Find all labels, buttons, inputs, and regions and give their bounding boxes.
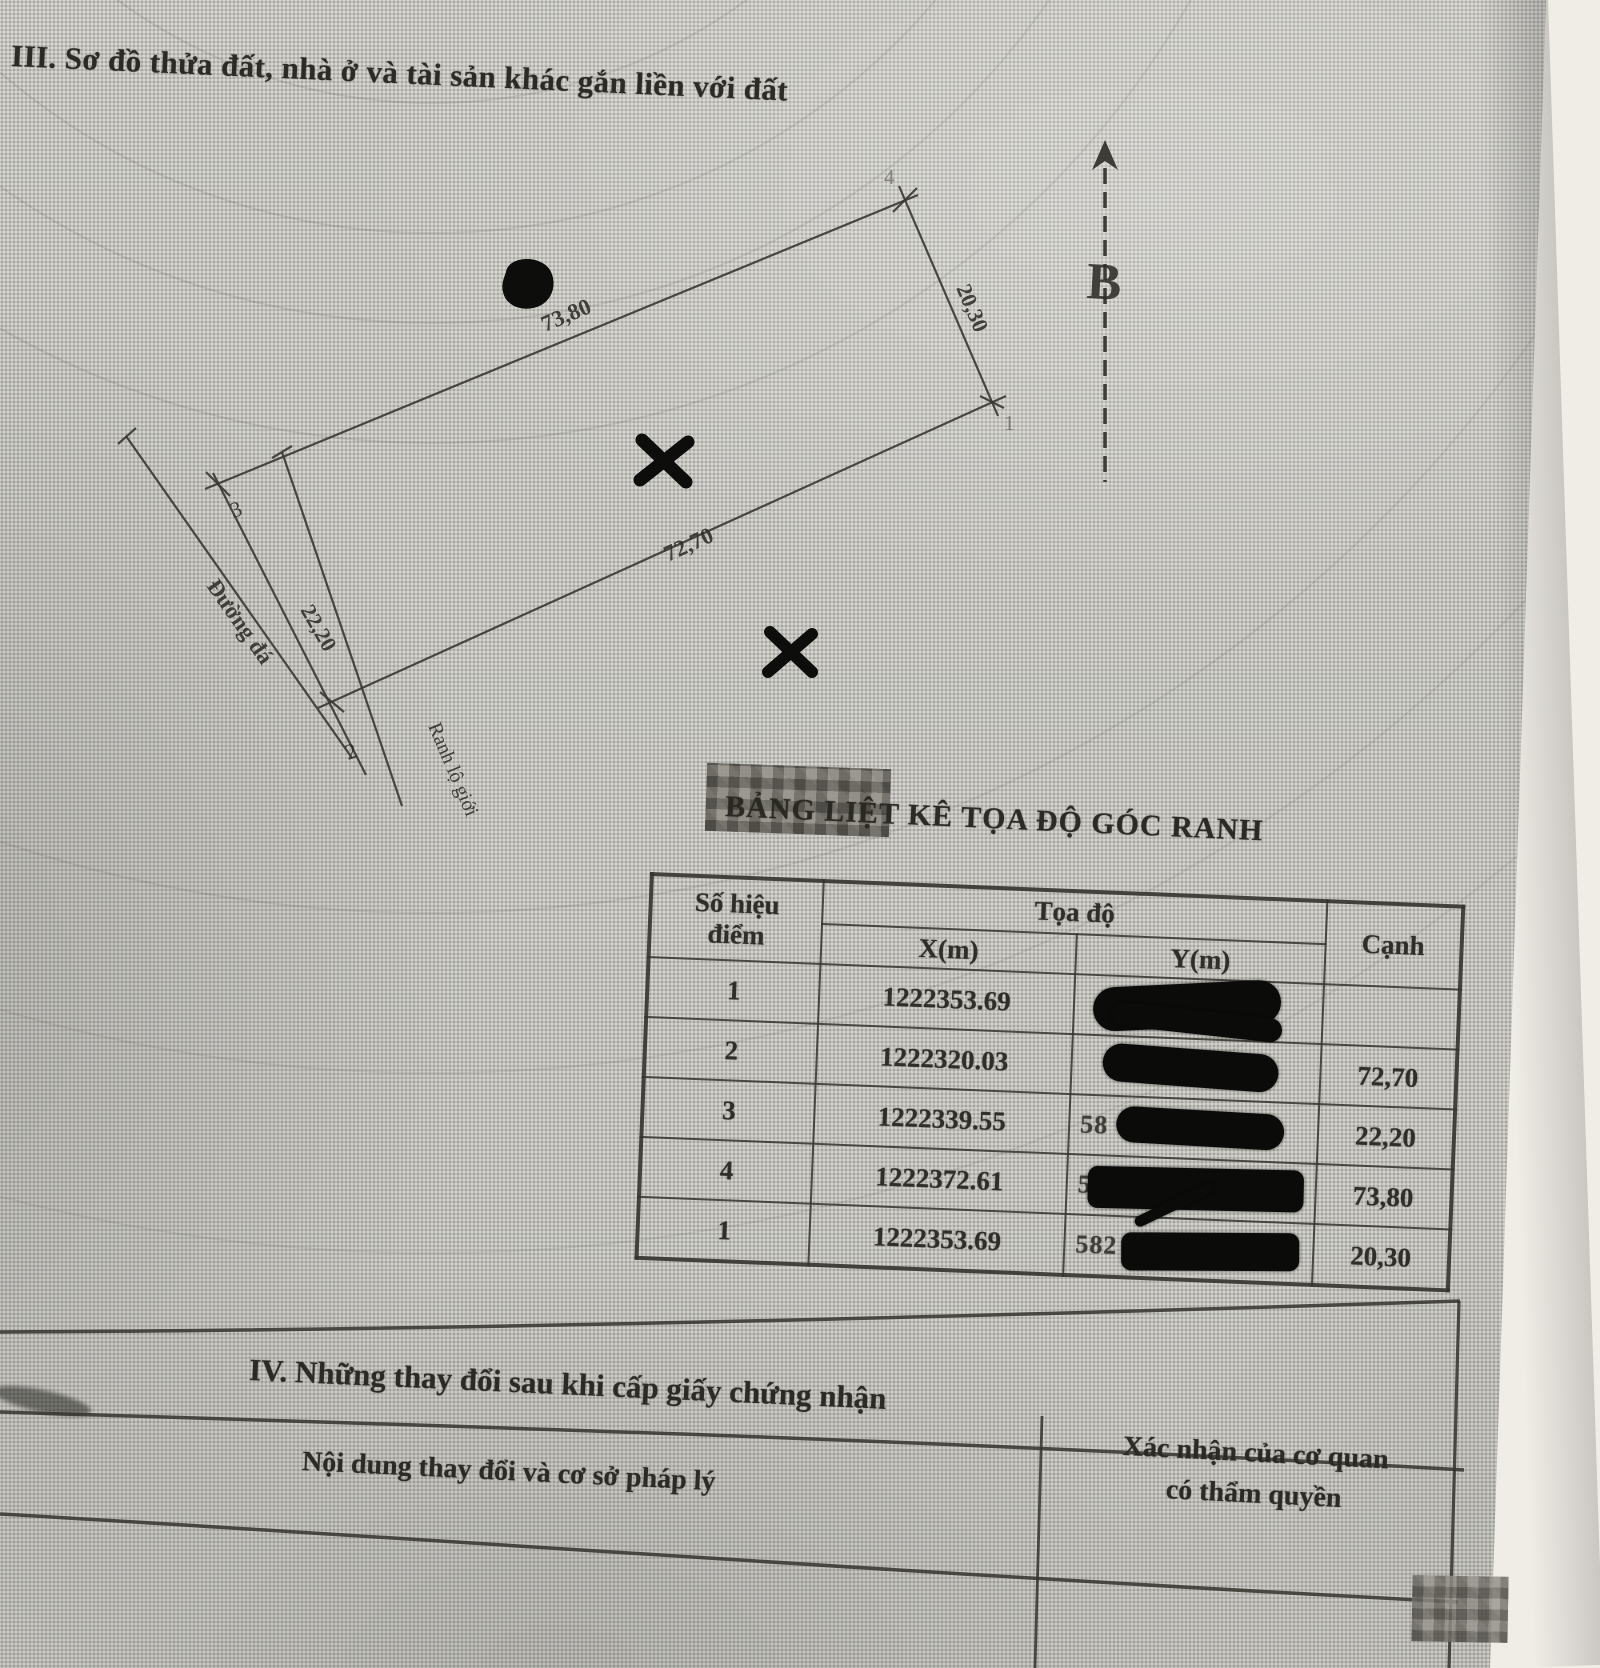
scan-shadow-mark: [0, 1380, 93, 1422]
cell-point: 1: [646, 957, 820, 1024]
redaction-mosaic: [1411, 1575, 1508, 1643]
cell-y-redacted: [1073, 974, 1324, 1044]
scanned-land-certificate-page: III. Sơ đồ thửa đất, nhà ở và tài sản kh…: [0, 0, 1600, 1668]
cell-x: 1222320.03: [816, 1024, 1073, 1094]
col-header-point: Số hiệu điểm: [649, 874, 824, 964]
cell-edge: 73,80: [1314, 1164, 1452, 1229]
cell-y-redacted: [1070, 1034, 1321, 1104]
cell-y-redacted: 582: [1063, 1214, 1314, 1285]
cell-x: 1222339.55: [813, 1084, 1070, 1154]
cell-y-redacted: 58: [1068, 1094, 1319, 1164]
cell-point: 2: [644, 1017, 818, 1084]
y-visible-fragment: 58: [1080, 1109, 1109, 1140]
cell-x: 1222353.69: [818, 964, 1075, 1034]
cell-point: 1: [637, 1197, 811, 1265]
cell-point: 3: [641, 1077, 815, 1144]
cell-x: 1222353.69: [808, 1204, 1065, 1275]
y-visible-fragment: 582: [1075, 1229, 1118, 1261]
marker-redaction: [1115, 1105, 1285, 1151]
coordinate-table: Số hiệu điểm Tọa độ Cạnh X(m) Y(m) 1 122…: [634, 872, 1465, 1292]
cell-edge: [1322, 984, 1460, 1049]
cell-edge: 72,70: [1319, 1044, 1457, 1109]
cell-edge: 20,30: [1312, 1224, 1450, 1290]
guilloche-arc: [0, 0, 1094, 234]
cell-edge: 22,20: [1317, 1104, 1455, 1169]
marker-redaction: [1121, 1232, 1299, 1271]
cell-x: 1222372.61: [811, 1144, 1068, 1214]
col-header-edge: Cạnh: [1324, 901, 1463, 989]
marker-redaction: [1101, 1042, 1279, 1093]
cell-point: 4: [639, 1137, 813, 1204]
